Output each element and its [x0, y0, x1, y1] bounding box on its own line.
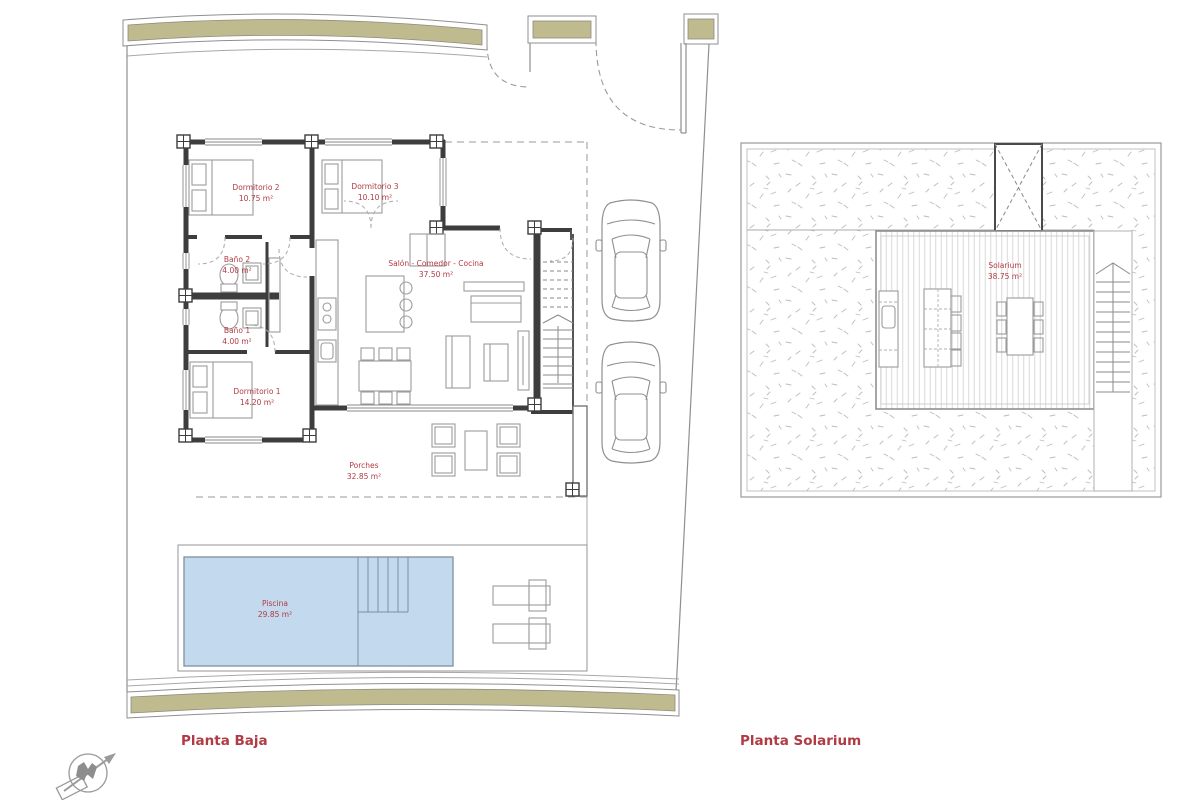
- furniture: [189, 160, 529, 476]
- room-label-bano-2: Baño 2 4.00 m²: [222, 254, 251, 276]
- room-area: 4.00 m²: [222, 336, 251, 347]
- north-arrow-icon: [56, 753, 116, 800]
- room-area: 37.50 m²: [388, 269, 483, 280]
- room-name: Dormitorio 1: [233, 386, 280, 397]
- staircase: [543, 262, 573, 388]
- pool-terrace: [178, 545, 587, 671]
- room-area: 4.00 m²: [222, 265, 251, 276]
- vehicle-gate-swing: [596, 40, 681, 130]
- floor-plan-canvas: Dormitorio 2 10.75 m² Dormitorio 3 10.10…: [0, 0, 1200, 800]
- plan-title-planta-baja: Planta Baja: [181, 733, 268, 749]
- room-label-salon: Salón - Comedor - Cocina 37.50 m²: [388, 258, 483, 280]
- plan-drawing: [0, 0, 1200, 800]
- kitchen-island: [366, 276, 412, 332]
- room-label-solarium: Solarium 38.75 m²: [988, 260, 1022, 282]
- living-room-set: [446, 282, 529, 390]
- room-area: 38.75 m²: [988, 271, 1022, 282]
- room-name: Baño 1: [222, 325, 251, 336]
- plan-title-planta-solarium: Planta Solarium: [740, 733, 861, 749]
- room-label-dormitorio-3: Dormitorio 3 10.10 m²: [351, 181, 398, 203]
- room-name: Baño 2: [222, 254, 251, 265]
- room-label-dormitorio-2: Dormitorio 2 10.75 m²: [232, 182, 279, 204]
- car-icon: [596, 342, 666, 463]
- room-label-bano-1: Baño 1 4.00 m²: [222, 325, 251, 347]
- solarium-deck: [876, 231, 1094, 409]
- car-icon: [596, 200, 666, 321]
- room-name: Salón - Comedor - Cocina: [388, 258, 483, 269]
- parked-cars: [596, 200, 666, 463]
- room-area: 29.85 m²: [258, 609, 292, 620]
- room-area: 32.85 m²: [347, 471, 381, 482]
- room-name: Dormitorio 2: [232, 182, 279, 193]
- solarium-plan: [741, 143, 1161, 497]
- porch-set: [432, 424, 520, 476]
- pedestrian-gate-swing: [487, 44, 530, 87]
- room-label-porches: Porches 32.85 m²: [347, 460, 381, 482]
- room-name: Solarium: [988, 260, 1022, 271]
- room-area: 10.10 m²: [351, 192, 398, 203]
- room-area: 10.75 m²: [232, 193, 279, 204]
- room-name: Dormitorio 3: [351, 181, 398, 192]
- dining-set: [359, 348, 411, 404]
- room-area: 14.20 m²: [233, 397, 280, 408]
- room-label-piscina: Piscina 29.85 m²: [258, 598, 292, 620]
- room-label-dormitorio-1: Dormitorio 1 14.20 m²: [233, 386, 280, 408]
- room-name: Piscina: [258, 598, 292, 609]
- room-name: Porches: [347, 460, 381, 471]
- pool: [184, 557, 453, 666]
